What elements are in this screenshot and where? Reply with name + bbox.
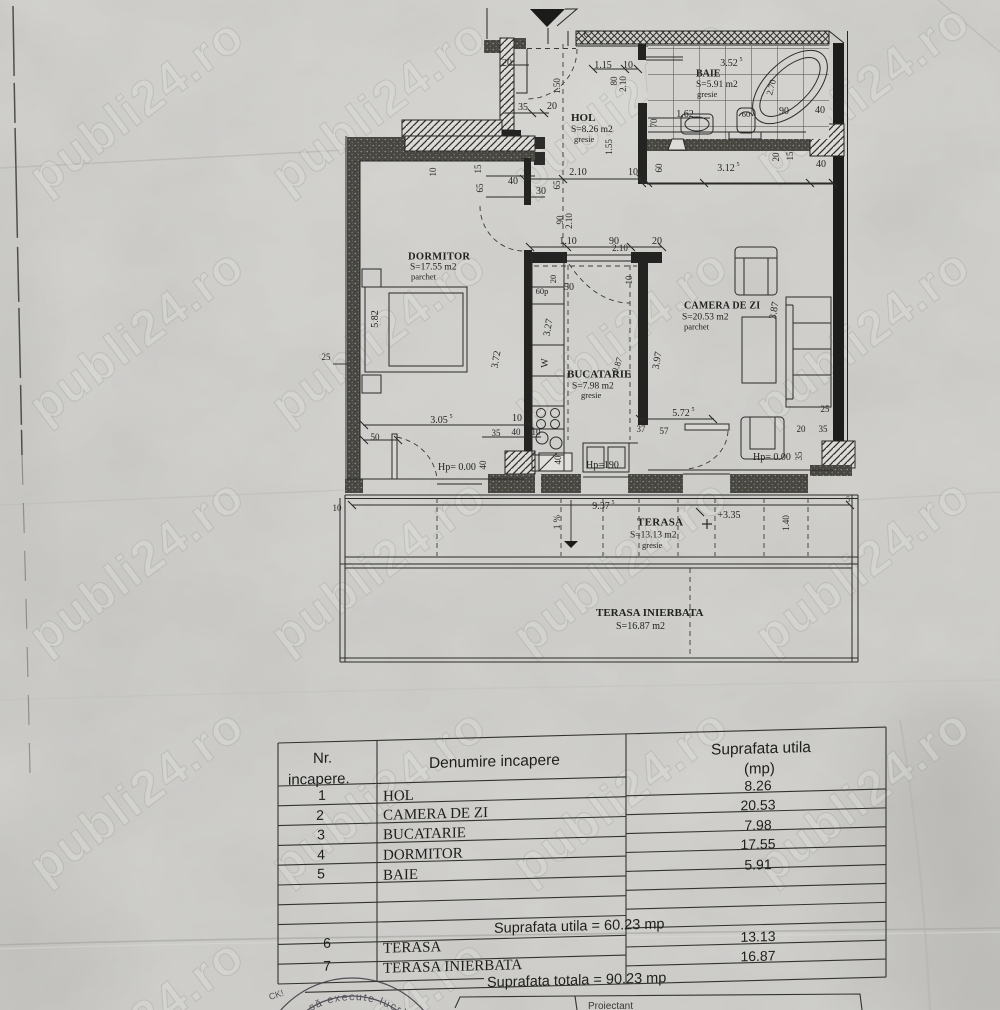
svg-text:20: 20	[652, 236, 662, 247]
svg-text:3.52: 3.52	[720, 58, 738, 69]
svg-text:Hp= 0.00: Hp= 0.00	[753, 452, 791, 463]
svg-text:S=13.13 m2: S=13.13 m2	[630, 531, 677, 541]
svg-text:60: 60	[742, 109, 751, 119]
svg-text:BUCATARIE: BUCATARIE	[383, 825, 466, 843]
svg-text:40: 40	[478, 460, 488, 470]
svg-text:20: 20	[771, 152, 781, 162]
svg-text:5: 5	[612, 500, 615, 506]
svg-text:1.55: 1.55	[604, 139, 614, 155]
svg-text:parchet: parchet	[684, 322, 710, 332]
svg-text:Denumire incapere: Denumire incapere	[429, 752, 560, 772]
svg-text:10: 10	[512, 413, 522, 424]
svg-text:40: 40	[816, 159, 826, 170]
svg-text:C: C	[584, 31, 589, 39]
svg-text:Nr.: Nr.	[313, 750, 332, 767]
svg-text:CAMERA DE ZI: CAMERA DE ZI	[383, 805, 488, 824]
svg-text:10: 10	[623, 60, 633, 71]
svg-text:65: 65	[552, 180, 562, 190]
svg-text:50: 50	[564, 282, 574, 293]
svg-text:W: W	[540, 358, 551, 368]
svg-text:17.55: 17.55	[740, 835, 775, 852]
svg-text:15: 15	[785, 151, 795, 161]
svg-text:30: 30	[536, 186, 546, 197]
svg-text:gresie: gresie	[642, 540, 663, 550]
svg-text:BUCATARIE: BUCATARIE	[567, 369, 631, 381]
svg-text:10: 10	[532, 427, 542, 437]
svg-text:40: 40	[815, 105, 825, 116]
svg-text:1: 1	[318, 787, 326, 803]
svg-text:2.10: 2.10	[569, 167, 587, 178]
svg-text:2.10: 2.10	[564, 213, 574, 229]
svg-text:TERASA: TERASA	[383, 939, 441, 957]
svg-text:5: 5	[450, 414, 453, 420]
svg-text:35: 35	[794, 451, 804, 461]
svg-text:70: 70	[649, 118, 659, 128]
svg-text:1 %: 1 %	[552, 514, 562, 529]
svg-text:DORMITOR: DORMITOR	[383, 846, 463, 864]
svg-text:35: 35	[518, 102, 528, 113]
svg-text:1.50: 1.50	[552, 78, 562, 94]
svg-text:10: 10	[628, 167, 638, 178]
svg-text:2.10: 2.10	[612, 243, 628, 253]
svg-text:20.53: 20.53	[740, 796, 775, 813]
svg-text:BAIE: BAIE	[696, 69, 721, 80]
svg-text:1.62: 1.62	[676, 109, 694, 120]
svg-text:3.05: 3.05	[430, 415, 448, 426]
svg-text:20: 20	[502, 58, 512, 69]
svg-text:7: 7	[323, 958, 331, 974]
svg-text:10: 10	[624, 275, 634, 285]
svg-text:50: 50	[371, 432, 381, 442]
svg-text:parchet: parchet	[411, 272, 437, 282]
svg-text:5: 5	[737, 162, 740, 168]
svg-text:Hp=190: Hp=190	[586, 460, 619, 471]
svg-text:40: 40	[553, 455, 563, 465]
svg-text:Suprafata utila: Suprafata utila	[711, 739, 811, 759]
svg-text:gresie: gresie	[574, 134, 595, 144]
svg-text:2.10: 2.10	[618, 76, 628, 92]
svg-text:5: 5	[317, 865, 325, 881]
svg-text:35: 35	[492, 428, 502, 438]
svg-text:65: 65	[475, 183, 485, 193]
svg-text:20: 20	[547, 101, 557, 112]
svg-text:60p: 60p	[536, 286, 549, 296]
svg-text:16.87: 16.87	[740, 947, 775, 964]
svg-text:5.72: 5.72	[672, 408, 690, 419]
svg-text:3: 3	[317, 826, 325, 842]
svg-text:10: 10	[428, 167, 438, 177]
svg-text:40: 40	[508, 176, 518, 187]
svg-text:5.82: 5.82	[370, 310, 381, 328]
svg-text:1.40: 1.40	[781, 515, 791, 531]
svg-text:DORMITOR: DORMITOR	[408, 252, 470, 263]
svg-text:90: 90	[779, 106, 789, 117]
svg-text:40: 40	[512, 427, 522, 437]
svg-text:9.37: 9.37	[592, 501, 610, 512]
svg-text:20: 20	[548, 275, 558, 284]
svg-text:Hp= 0.00: Hp= 0.00	[438, 462, 476, 473]
svg-text:3.12: 3.12	[717, 163, 735, 174]
svg-text:25: 25	[821, 404, 831, 414]
svg-text:5: 5	[692, 407, 695, 413]
svg-text:5: 5	[846, 495, 850, 504]
svg-text:HOL: HOL	[383, 788, 414, 805]
svg-text:BAIE: BAIE	[383, 867, 418, 884]
svg-text:25: 25	[322, 352, 332, 362]
svg-text:gresie: gresie	[697, 89, 718, 99]
svg-text:10: 10	[333, 503, 343, 513]
svg-text:1.15: 1.15	[594, 60, 612, 71]
svg-text:57: 57	[660, 426, 670, 436]
svg-text:6: 6	[323, 935, 331, 951]
svg-text:gresie: gresie	[581, 390, 602, 400]
svg-text:15: 15	[473, 164, 483, 174]
svg-text:(mp): (mp)	[744, 760, 775, 778]
svg-text:2: 2	[316, 807, 324, 823]
svg-text:37: 37	[637, 424, 647, 434]
svg-text:+3.35: +3.35	[717, 510, 740, 521]
svg-text:Proiectant: Proiectant	[588, 1001, 633, 1010]
svg-text:TERASA INIERBATA: TERASA INIERBATA	[596, 607, 704, 619]
svg-text:5: 5	[740, 57, 743, 63]
svg-text:1.10: 1.10	[559, 236, 577, 247]
svg-text:TERASA: TERASA	[637, 517, 683, 529]
svg-text:7.98: 7.98	[744, 817, 771, 834]
svg-text:5.91: 5.91	[744, 856, 771, 873]
svg-text:20: 20	[797, 424, 807, 434]
svg-text:60: 60	[654, 163, 664, 173]
svg-text:8.26: 8.26	[744, 777, 771, 794]
svg-text:35: 35	[819, 424, 829, 434]
svg-text:incapere.: incapere.	[288, 770, 350, 789]
svg-text:S=16.87 m2: S=16.87 m2	[616, 621, 665, 632]
svg-text:HOL: HOL	[571, 112, 595, 124]
svg-text:13.13: 13.13	[740, 928, 775, 945]
svg-text:CAMERA DE ZI: CAMERA DE ZI	[684, 301, 760, 312]
svg-text:4: 4	[317, 846, 325, 862]
